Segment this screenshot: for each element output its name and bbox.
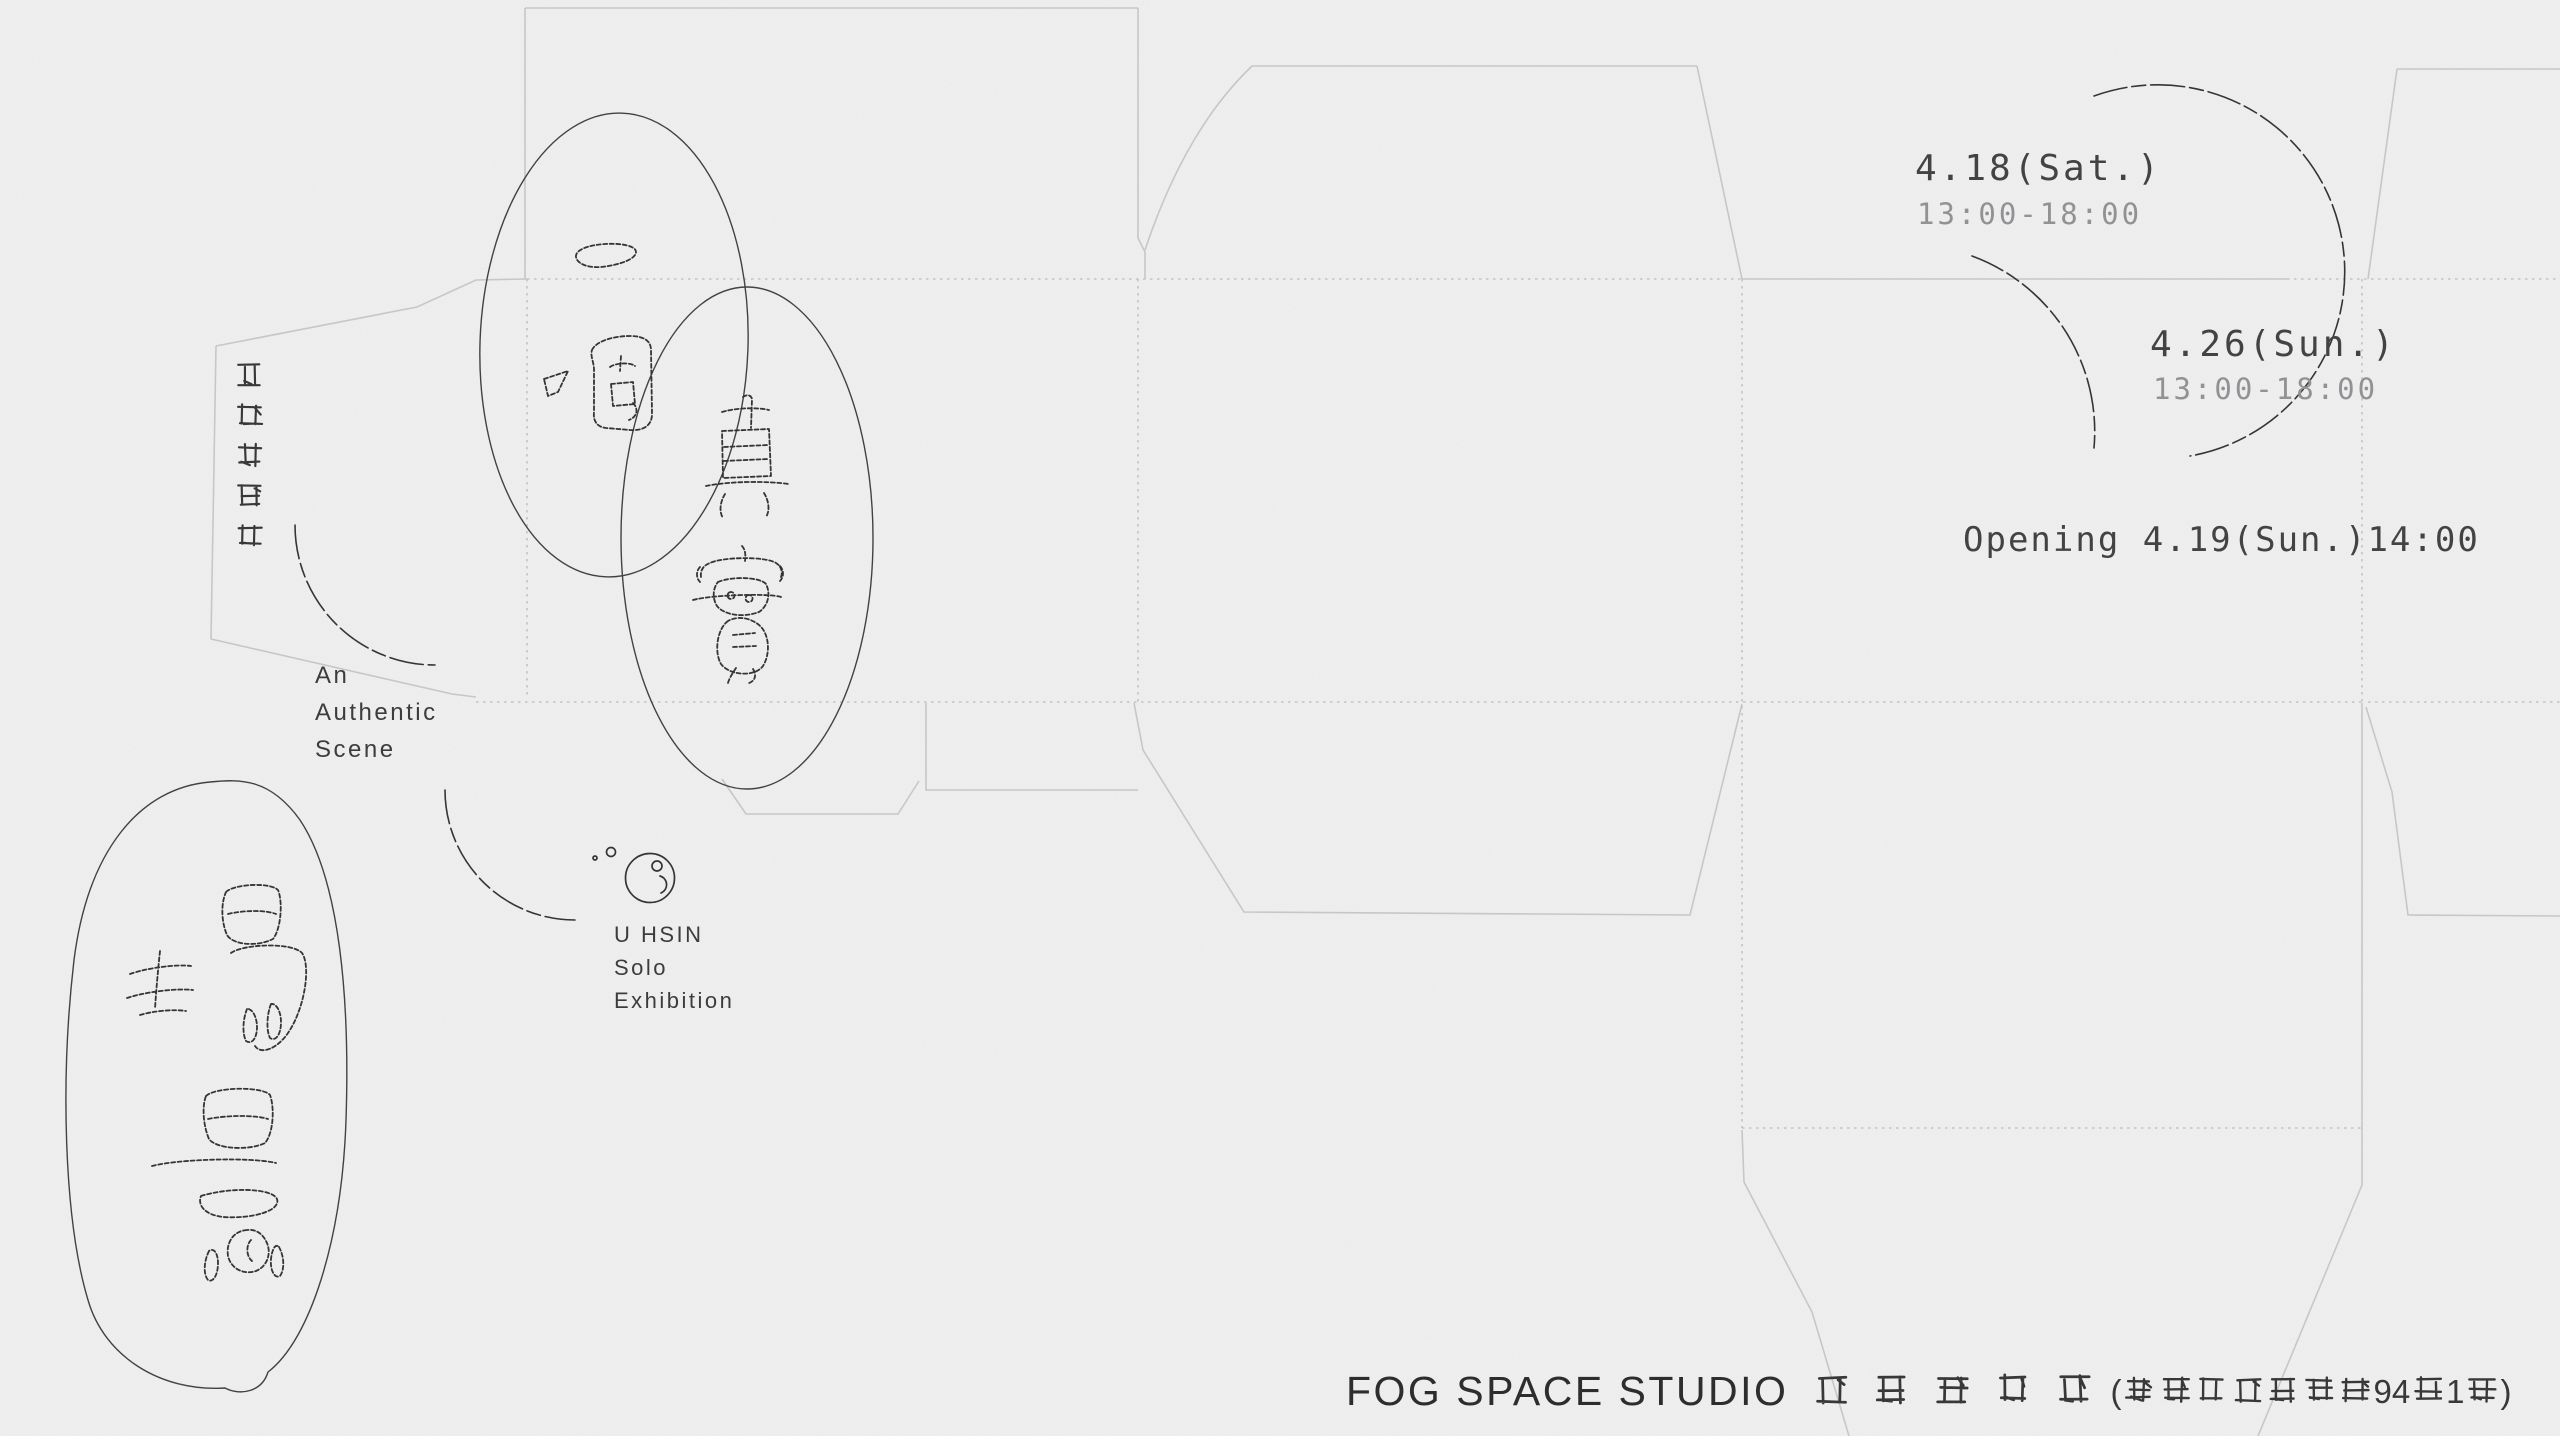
sketch-char-yi bbox=[576, 244, 636, 267]
dieline-shoulder-curve bbox=[1145, 66, 1252, 250]
sketch-char-zhen bbox=[706, 395, 789, 518]
sketch-char-shi bbox=[693, 546, 783, 683]
venue-line: FOG SPACE STUDIO (941) bbox=[1346, 1368, 2512, 1415]
artist-name-vertical bbox=[235, 360, 265, 550]
venue-address: (941) bbox=[2110, 1373, 2511, 1411]
time-2: 13:00-18:00 bbox=[2153, 372, 2378, 406]
venue-name-latin: FOG SPACE STUDIO bbox=[1346, 1368, 1788, 1415]
artist-en-line3: Exhibition bbox=[614, 984, 734, 1017]
title-zh-part1: 一個 bbox=[614, 345, 618, 348]
dieline-tab bbox=[722, 779, 919, 814]
dieline-topright-slant bbox=[2368, 69, 2397, 279]
quarter-arc-artist bbox=[445, 790, 575, 920]
dieline-mid-vertical bbox=[1138, 8, 1145, 279]
sketch-char-chang bbox=[127, 885, 306, 1050]
dieline-flap-left bbox=[1134, 703, 1742, 915]
title-en-line1: An bbox=[315, 657, 438, 694]
date-1: 4.18(Sat.) bbox=[1915, 148, 2162, 189]
artist-english: U HSIN Solo Exhibition bbox=[614, 918, 734, 1017]
date-2: 4.26(Sun.) bbox=[2150, 324, 2397, 365]
bubble-sketch-icon bbox=[593, 848, 675, 903]
dieline-leftpanel-left bbox=[211, 346, 216, 639]
title-ellipse-1 bbox=[472, 108, 756, 581]
sketch-char-jing bbox=[152, 1089, 283, 1281]
title-en-line2: Authentic bbox=[315, 694, 438, 731]
title-zh-part2: 真實 bbox=[747, 538, 751, 541]
dieline-flap-right bbox=[2366, 707, 2560, 916]
dieline-bottomflap-right bbox=[2258, 703, 2362, 1436]
title-english: An Authentic Scene bbox=[315, 657, 438, 768]
dieline-slot bbox=[926, 703, 1138, 790]
quarter-arc-title bbox=[295, 525, 435, 665]
opening-info: Opening 4.19(Sun.)14:00 bbox=[1963, 520, 2480, 560]
dieline-topmid-slant bbox=[1697, 66, 1742, 279]
title-en-line3: Scene bbox=[315, 731, 438, 768]
sketch-char-ge bbox=[544, 336, 652, 430]
artist-en-line1: U HSIN bbox=[614, 918, 734, 951]
title-ellipse-2 bbox=[621, 287, 873, 789]
date-circle-arc-left bbox=[1972, 256, 2095, 448]
venue-name-zh bbox=[1810, 1370, 2096, 1413]
time-1: 13:00-18:00 bbox=[1917, 197, 2142, 231]
poster-canvas: 一個 真實 場景 An Authentic Scene U HSIN Solo … bbox=[0, 0, 2560, 1436]
artist-en-line2: Solo bbox=[614, 951, 734, 984]
title-blob-3 bbox=[66, 781, 347, 1392]
title-zh-part3: 場景 bbox=[210, 1080, 214, 1083]
dieline-leftpanel-top bbox=[216, 279, 527, 346]
